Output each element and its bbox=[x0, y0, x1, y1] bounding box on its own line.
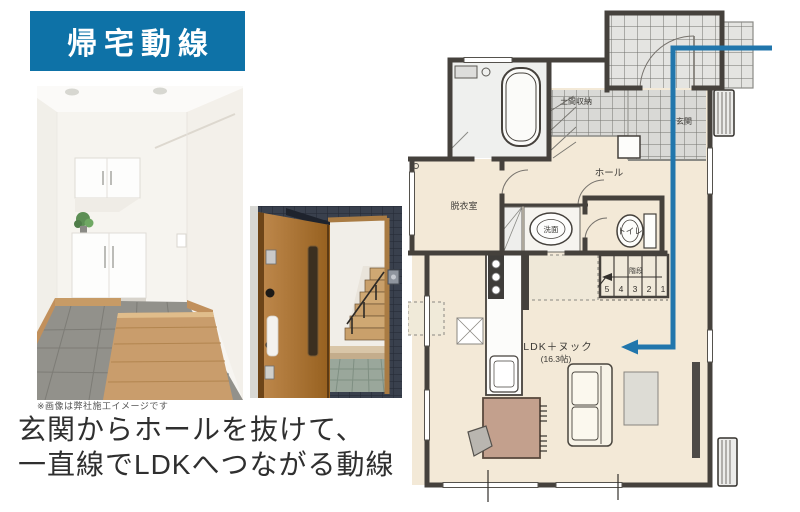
svg-text:1: 1 bbox=[661, 284, 666, 294]
doorway-interior bbox=[328, 220, 388, 392]
kitchen bbox=[486, 252, 529, 395]
closet bbox=[504, 207, 522, 251]
front-door-panel bbox=[258, 212, 330, 398]
svg-text:3: 3 bbox=[633, 284, 638, 294]
rug bbox=[624, 372, 658, 425]
doorbell-icon bbox=[388, 270, 399, 284]
upper-cabinet bbox=[75, 158, 140, 212]
caption-line-2: 一直線でLDKへつながる動線 bbox=[18, 447, 394, 482]
section-title-badge: 帰宅動線 bbox=[30, 11, 245, 71]
photo-disclaimer: ※画像は弊社施工イメージです bbox=[37, 399, 168, 412]
porch-tiles bbox=[608, 15, 722, 88]
stairs bbox=[591, 255, 668, 300]
svg-text:4: 4 bbox=[619, 284, 624, 294]
label-ldk: LDK＋ヌック bbox=[523, 341, 592, 353]
tv-board bbox=[692, 362, 700, 458]
shoe-cabinet bbox=[618, 136, 640, 158]
flyer-page: 帰宅動線 bbox=[0, 0, 800, 512]
svg-text:5: 5 bbox=[605, 284, 610, 294]
downlight-icon bbox=[65, 89, 79, 96]
label-genkan: 玄関 bbox=[676, 116, 692, 126]
downlight-icon bbox=[153, 88, 167, 95]
ac-outdoor-unit bbox=[718, 438, 737, 486]
ac-outdoor-unit bbox=[714, 90, 734, 136]
light-switch-icon bbox=[177, 234, 186, 247]
label-washstand: 洗面 bbox=[544, 224, 559, 234]
label-toilet: トイレ bbox=[617, 226, 643, 236]
counter-outline bbox=[526, 255, 598, 300]
wood-entry-step bbox=[103, 312, 233, 400]
entry-hall-photo bbox=[37, 86, 243, 400]
caption: 玄関からホールを抜けて、 一直線でLDKへつながる動線 bbox=[18, 412, 394, 483]
label-ldk-size: (16.3帖) bbox=[541, 354, 572, 364]
label-hall: ホール bbox=[595, 168, 624, 179]
floor-marker bbox=[457, 318, 483, 344]
lower-cabinet bbox=[72, 233, 146, 303]
svg-text:2: 2 bbox=[647, 284, 652, 294]
floorplan: 土間収納 ホール 玄関 脱衣室 洗面 トイレ 階段 5 4 3 2 1 LDK＋… bbox=[408, 0, 800, 512]
label-stairs: 階段 bbox=[629, 266, 643, 275]
label-doma: 土間収納 bbox=[560, 96, 592, 106]
label-dressing: 脱衣室 bbox=[450, 200, 477, 211]
door-knob-icon bbox=[266, 289, 275, 298]
bath-vanity bbox=[455, 66, 477, 78]
sofa bbox=[568, 364, 612, 446]
front-door-illustration bbox=[250, 206, 402, 398]
door-lock-plate-icon bbox=[266, 250, 276, 264]
bathtub bbox=[502, 68, 540, 146]
front-door-photo bbox=[250, 206, 402, 398]
approach-tiles bbox=[722, 22, 753, 88]
caption-line-1: 玄関からホールを抜けて、 bbox=[18, 412, 394, 447]
entry-hall-illustration bbox=[37, 86, 243, 400]
